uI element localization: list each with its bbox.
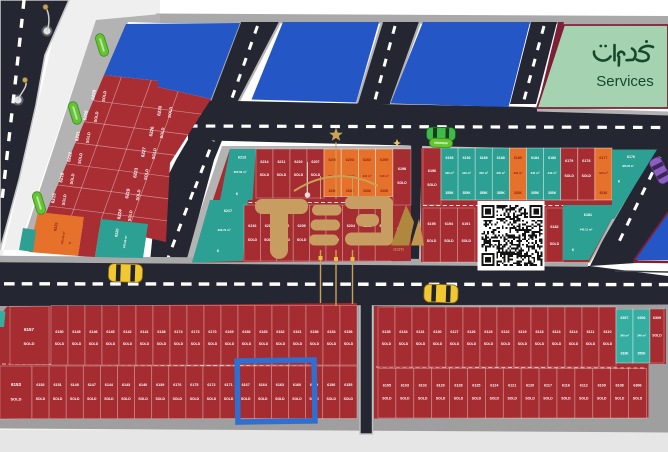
svg-text:SOLD: SOLD <box>433 342 443 346</box>
svg-text:6103: 6103 <box>401 384 409 388</box>
svg-text:6199: 6199 <box>380 158 388 162</box>
svg-text:SOLD: SOLD <box>550 242 560 246</box>
svg-text:SOLD: SOLD <box>436 397 446 401</box>
svg-text:6149: 6149 <box>72 330 80 334</box>
svg-text:6306: 6306 <box>638 316 646 320</box>
svg-text:SOLD: SOLD <box>241 397 251 401</box>
svg-text:333K: 333K <box>599 191 608 195</box>
svg-text:355K: 355K <box>463 191 472 195</box>
svg-text:SOLD: SOLD <box>225 342 235 346</box>
svg-text:6191: 6191 <box>462 222 470 226</box>
svg-text:350K: 350K <box>637 352 646 356</box>
svg-text:6170: 6170 <box>208 330 216 334</box>
svg-text:SOLD: SOLD <box>275 397 285 401</box>
svg-text:SOLD: SOLD <box>454 397 464 401</box>
svg-text:6111: 6111 <box>587 330 595 334</box>
svg-text:6118: 6118 <box>536 330 544 334</box>
svg-text:6151: 6151 <box>53 383 61 387</box>
svg-text:SOLD: SOLD <box>70 397 80 401</box>
svg-text:6194: 6194 <box>445 222 454 226</box>
svg-text:SOLD: SOLD <box>615 397 625 401</box>
svg-text:6122: 6122 <box>501 330 509 334</box>
svg-text:SOLD: SOLD <box>89 342 99 346</box>
svg-text:SOLD: SOLD <box>501 342 511 346</box>
svg-text:6214: 6214 <box>260 160 269 164</box>
svg-text:6124: 6124 <box>490 384 499 388</box>
svg-text:SOLD: SOLD <box>525 397 535 401</box>
svg-text:SOLD: SOLD <box>208 342 218 346</box>
svg-text:6114: 6114 <box>570 330 579 334</box>
svg-text:SOLD: SOLD <box>467 342 477 346</box>
svg-text:SOLD: SOLD <box>326 397 336 401</box>
svg-text:6129: 6129 <box>436 384 444 388</box>
svg-text:6135: 6135 <box>382 330 390 334</box>
svg-text:SOLD: SOLD <box>472 397 482 401</box>
svg-text:SOLD: SOLD <box>155 397 165 401</box>
svg-text:340 m²: 340 m² <box>445 171 454 175</box>
svg-text:6156: 6156 <box>327 383 335 387</box>
svg-text:SOLD: SOLD <box>294 173 304 177</box>
svg-text:6150: 6150 <box>55 330 63 334</box>
svg-text:340 m²: 340 m² <box>496 171 505 175</box>
svg-text:6188: 6188 <box>497 156 505 160</box>
svg-text:6171: 6171 <box>224 383 232 387</box>
svg-text:6161: 6161 <box>293 330 301 334</box>
svg-text:SOLD: SOLD <box>490 397 500 401</box>
svg-text:333K: 333K <box>363 189 372 193</box>
svg-text:SOLD: SOLD <box>23 341 34 346</box>
svg-text:6113: 6113 <box>553 330 561 334</box>
svg-text:SOLD: SOLD <box>344 397 354 401</box>
svg-text:6165: 6165 <box>259 330 267 334</box>
svg-text:6216: 6216 <box>248 224 256 228</box>
svg-text:SOLD: SOLD <box>450 342 460 346</box>
svg-text:340 m²: 340 m² <box>531 171 540 175</box>
svg-text:SOLD: SOLD <box>400 397 410 401</box>
svg-text:6176: 6176 <box>627 155 635 159</box>
svg-text:SOLD: SOLD <box>276 342 286 346</box>
svg-text:6157: 6157 <box>24 327 35 332</box>
svg-text:355K: 355K <box>497 191 506 195</box>
svg-text:6213: 6213 <box>238 156 246 160</box>
svg-text:6184: 6184 <box>531 156 539 160</box>
svg-text:6119: 6119 <box>519 330 527 334</box>
svg-text:SOLD: SOLD <box>397 181 407 185</box>
svg-text:340 m²: 340 m² <box>462 171 471 175</box>
svg-text:SOLD: SOLD <box>382 397 392 401</box>
svg-text:SOLD: SOLD <box>224 397 234 401</box>
svg-text:SOLD: SOLD <box>552 342 562 346</box>
svg-text:SOLD: SOLD <box>292 397 302 401</box>
svg-text:355K: 355K <box>480 191 489 195</box>
svg-text:6217: 6217 <box>224 209 232 213</box>
svg-text:6192: 6192 <box>463 156 471 160</box>
svg-text:6131: 6131 <box>416 330 424 334</box>
svg-text:6195: 6195 <box>427 222 435 226</box>
svg-text:SOLD: SOLD <box>310 342 320 346</box>
svg-text:340 m²: 340 m² <box>363 174 372 178</box>
svg-text:6158: 6158 <box>310 330 318 334</box>
svg-text:6307: 6307 <box>621 316 629 320</box>
svg-text:6154: 6154 <box>327 330 336 334</box>
svg-text:939.79 m²: 939.79 m² <box>218 228 231 232</box>
svg-text:6173: 6173 <box>191 330 199 334</box>
svg-text:SOLD: SOLD <box>260 173 270 177</box>
svg-text:340 m²: 340 m² <box>380 174 389 178</box>
svg-text:6126: 6126 <box>467 330 475 334</box>
svg-text:6141: 6141 <box>140 330 148 334</box>
svg-text:SOLD: SOLD <box>258 397 268 401</box>
svg-text:333K: 333K <box>620 352 629 356</box>
svg-text:6210: 6210 <box>294 160 302 164</box>
svg-text:6155: 6155 <box>344 383 352 387</box>
svg-text:6108: 6108 <box>615 384 623 388</box>
svg-text:6207: 6207 <box>311 160 319 164</box>
svg-text:6164: 6164 <box>259 383 268 387</box>
svg-text:SOLD: SOLD <box>444 239 454 243</box>
svg-text:6143: 6143 <box>122 383 130 387</box>
svg-text:SOLD: SOLD <box>297 238 307 242</box>
svg-text:340 m²: 340 m² <box>620 334 629 338</box>
svg-text:SOLD: SOLD <box>157 342 167 346</box>
svg-text:6145: 6145 <box>106 330 114 334</box>
svg-text:6146: 6146 <box>89 330 97 334</box>
svg-text:SOLD: SOLD <box>579 397 589 401</box>
svg-text:SOLD: SOLD <box>10 397 21 402</box>
svg-text:333K: 333K <box>380 189 389 193</box>
svg-text:ocm: ocm <box>393 247 404 253</box>
svg-text:6185: 6185 <box>514 156 522 160</box>
svg-text:6139: 6139 <box>156 383 164 387</box>
svg-text:6167: 6167 <box>242 383 250 387</box>
svg-text:Services: Services <box>596 73 654 90</box>
svg-text:6204: 6204 <box>347 224 356 228</box>
svg-text:SOLD: SOLD <box>259 342 269 346</box>
svg-text:SOLD: SOLD <box>327 342 337 346</box>
svg-text:SOLD: SOLD <box>582 174 592 178</box>
svg-text:445.11 m²: 445.11 m² <box>580 228 593 232</box>
svg-text:SOLD: SOLD <box>190 397 200 401</box>
svg-text:SOLD: SOLD <box>427 183 437 187</box>
svg-text:6153: 6153 <box>11 382 22 387</box>
svg-text:6102: 6102 <box>419 384 427 388</box>
svg-text:SOLD: SOLD <box>207 397 217 401</box>
svg-text:6198: 6198 <box>398 167 406 171</box>
svg-text:SOLD: SOLD <box>507 397 517 401</box>
svg-text:6211: 6211 <box>278 160 286 164</box>
svg-text:6134: 6134 <box>399 330 408 334</box>
svg-text:6193: 6193 <box>446 156 454 160</box>
svg-text:SOLD: SOLD <box>191 342 201 346</box>
svg-text:340 m²: 340 m² <box>548 171 557 175</box>
svg-text:6163: 6163 <box>276 383 284 387</box>
svg-text:SOLD: SOLD <box>293 342 303 346</box>
svg-text:SOLD: SOLD <box>87 397 97 401</box>
svg-text:6162: 6162 <box>276 330 284 334</box>
svg-text:6160: 6160 <box>293 383 301 387</box>
svg-text:6169: 6169 <box>225 330 233 334</box>
svg-text:SOLD: SOLD <box>518 342 528 346</box>
svg-text:6144: 6144 <box>105 383 114 387</box>
svg-text:333K: 333K <box>346 189 355 193</box>
svg-text:SOLD: SOLD <box>535 342 545 346</box>
svg-text:6189: 6189 <box>480 156 488 160</box>
svg-text:6142: 6142 <box>123 330 131 334</box>
svg-text:6125: 6125 <box>472 384 480 388</box>
svg-text:6120: 6120 <box>526 384 534 388</box>
svg-text:6179: 6179 <box>565 159 573 163</box>
svg-text:SOLD: SOLD <box>652 334 662 338</box>
svg-text:SOLD: SOLD <box>311 173 321 177</box>
svg-text:SOLD: SOLD <box>344 342 354 346</box>
svg-text:340 m²: 340 m² <box>479 171 488 175</box>
svg-text:SOLD: SOLD <box>277 173 287 177</box>
svg-text:355K: 355K <box>548 191 557 195</box>
svg-text:6116: 6116 <box>562 384 570 388</box>
svg-text:SOLD: SOLD <box>597 397 607 401</box>
svg-text:365.59 m²: 365.59 m² <box>234 170 247 174</box>
svg-text:SOLD: SOLD <box>586 342 596 346</box>
svg-text:6180: 6180 <box>548 156 556 160</box>
svg-text:6130: 6130 <box>433 330 441 334</box>
svg-text:SOLD: SOLD <box>564 174 574 178</box>
svg-text:6152: 6152 <box>36 383 44 387</box>
svg-text:SOLD: SOLD <box>248 238 258 242</box>
svg-text:6105: 6105 <box>383 384 391 388</box>
svg-text:355K: 355K <box>445 191 454 195</box>
svg-text:SOLD: SOLD <box>173 397 183 401</box>
svg-text:6203: 6203 <box>346 158 354 162</box>
svg-text:6117: 6117 <box>544 384 552 388</box>
svg-text:SOLD: SOLD <box>416 342 426 346</box>
svg-text:6123: 6123 <box>484 330 492 334</box>
svg-text:SOLD: SOLD <box>382 342 392 346</box>
svg-text:6209: 6209 <box>297 224 305 228</box>
svg-text:SOLD: SOLD <box>484 342 494 346</box>
svg-text:6172: 6172 <box>207 383 215 387</box>
svg-text:SOLD: SOLD <box>106 342 116 346</box>
svg-text:6202: 6202 <box>363 158 371 162</box>
svg-text:6112: 6112 <box>580 384 588 388</box>
svg-text:SOLD: SOLD <box>603 342 613 346</box>
svg-text:355K: 355K <box>531 191 540 195</box>
svg-text:SOLD: SOLD <box>633 397 643 401</box>
svg-text:6176: 6176 <box>173 383 181 387</box>
svg-text:SOLD: SOLD <box>561 397 571 401</box>
svg-text:346 m²: 346 m² <box>637 334 646 338</box>
svg-text:6178: 6178 <box>582 159 590 163</box>
svg-text:SOLD: SOLD <box>418 397 428 401</box>
svg-text:6166: 6166 <box>242 330 250 334</box>
svg-text:6140: 6140 <box>139 383 147 387</box>
svg-text:6182: 6182 <box>550 225 558 229</box>
svg-text:SOLD: SOLD <box>138 397 148 401</box>
svg-text:SOLD: SOLD <box>399 342 409 346</box>
svg-text:SOLD: SOLD <box>461 239 471 243</box>
svg-text:6110: 6110 <box>604 330 612 334</box>
svg-text:SOLD: SOLD <box>242 342 252 346</box>
svg-text:SOLD: SOLD <box>36 397 46 401</box>
svg-text:6206: 6206 <box>328 158 336 162</box>
svg-text:SOLD: SOLD <box>121 397 131 401</box>
svg-text:6128: 6128 <box>454 384 462 388</box>
svg-text:6306: 6306 <box>633 384 641 388</box>
svg-text:6309: 6309 <box>653 316 661 320</box>
svg-text:6177: 6177 <box>599 156 607 160</box>
svg-text:6174: 6174 <box>174 330 183 334</box>
svg-text:SOLD: SOLD <box>140 342 150 346</box>
svg-text:SOLD: SOLD <box>543 397 553 401</box>
svg-text:SOLD: SOLD <box>427 239 437 243</box>
svg-text:SOLD: SOLD <box>569 342 579 346</box>
svg-text:6148: 6148 <box>71 383 79 387</box>
svg-text:6147: 6147 <box>88 383 96 387</box>
svg-text:SOLD: SOLD <box>72 342 82 346</box>
svg-text:6109: 6109 <box>598 384 606 388</box>
svg-text:6121: 6121 <box>508 384 516 388</box>
svg-text:340 m²: 340 m² <box>599 171 608 175</box>
svg-text:6196: 6196 <box>428 169 436 173</box>
svg-text:6127: 6127 <box>450 330 458 334</box>
svg-text:SOLD: SOLD <box>123 342 133 346</box>
svg-text:333K: 333K <box>514 191 523 195</box>
svg-text:6138: 6138 <box>157 330 165 334</box>
svg-text:340 m²: 340 m² <box>513 171 522 175</box>
svg-text:SOLD: SOLD <box>174 342 184 346</box>
svg-text:SOLD: SOLD <box>53 397 63 401</box>
svg-text:6175: 6175 <box>190 383 198 387</box>
svg-text:SOLD: SOLD <box>104 397 114 401</box>
svg-text:325.35 m²: 325.35 m² <box>622 164 634 168</box>
svg-text:6181: 6181 <box>584 213 592 217</box>
svg-text:SOLD: SOLD <box>55 342 65 346</box>
svg-text:6156: 6156 <box>344 330 352 334</box>
